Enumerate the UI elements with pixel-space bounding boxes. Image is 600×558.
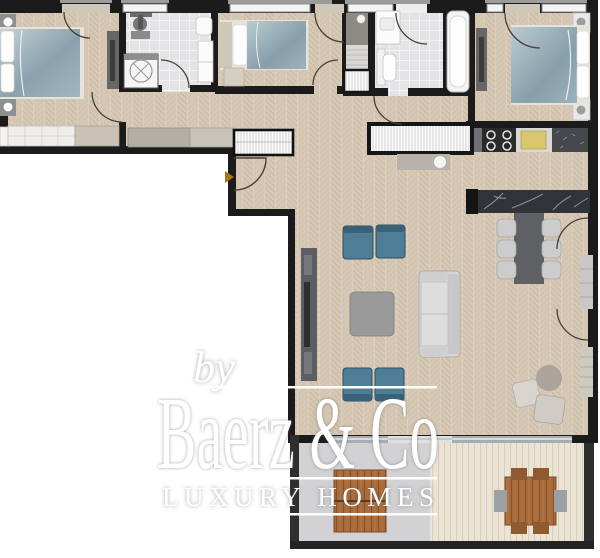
svg-text:Baerz & Co: Baerz & Co [157,376,439,491]
